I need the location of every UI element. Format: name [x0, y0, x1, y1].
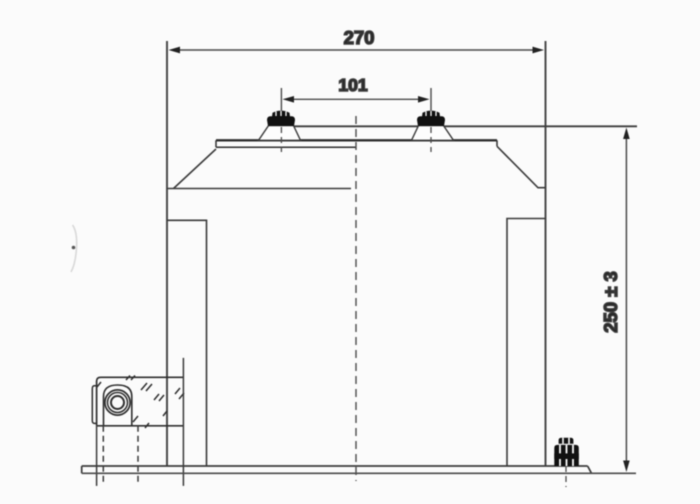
svg-text:101: 101	[338, 75, 367, 95]
svg-text:270: 270	[344, 27, 375, 48]
svg-text:250 ± 3: 250 ± 3	[600, 271, 621, 333]
